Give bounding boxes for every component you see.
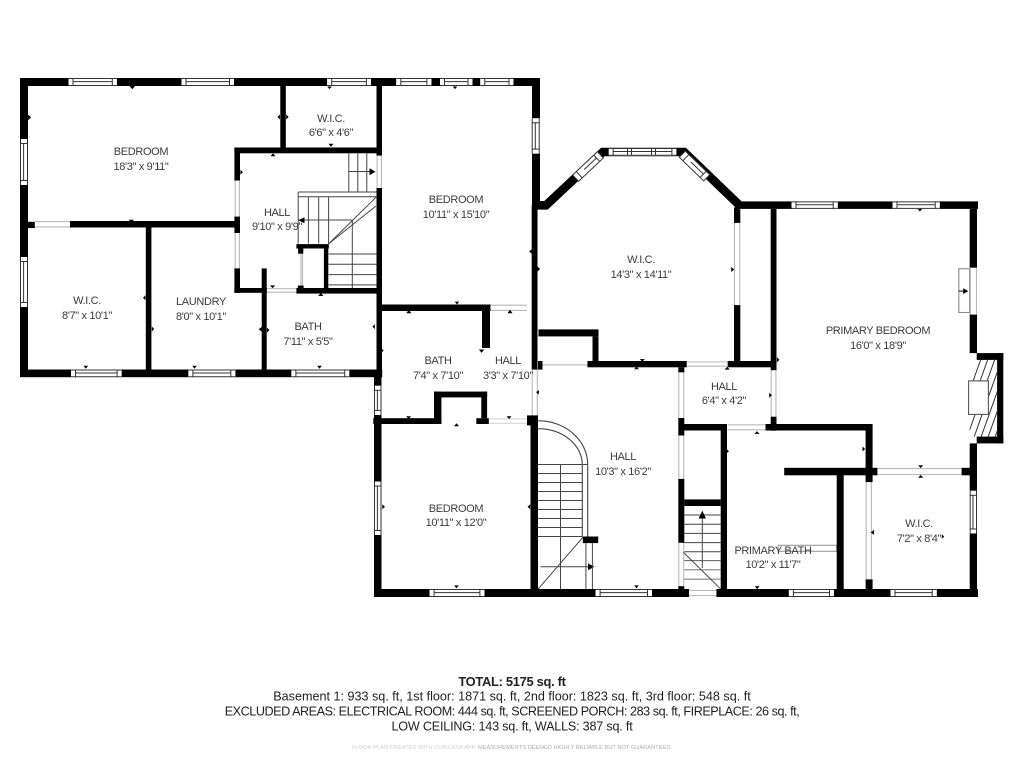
svg-text:BEDROOM: BEDROOM [114,146,169,158]
svg-text:18'3" x 9'11": 18'3" x 9'11" [114,161,169,173]
svg-text:14'3" x 14'11": 14'3" x 14'11" [611,269,672,281]
svg-text:10'11" x 15'10": 10'11" x 15'10" [423,209,490,221]
svg-text:W.I.C.: W.I.C. [905,518,933,530]
svg-text:BATH: BATH [294,321,322,333]
svg-text:6'6" x 4'6": 6'6" x 4'6" [309,127,354,139]
svg-text:10'11" x 12'0": 10'11" x 12'0" [426,517,487,529]
svg-text:9'10" x 9'9": 9'10" x 9'9" [252,221,302,233]
svg-text:16'0" x 18'9": 16'0" x 18'9" [850,340,906,352]
svg-text:Basement 1: 933 sq. ft, 1st fl: Basement 1: 933 sq. ft, 1st floor: 1871 … [273,690,751,704]
svg-text:FLOOR PLAN CREATED WITH CUBICA: FLOOR PLAN CREATED WITH CUBICASA APP. ME… [352,745,672,751]
svg-text:LOW CEILING: 143 sq. ft, WALLS: LOW CEILING: 143 sq. ft, WALLS: 387 sq. … [391,720,633,734]
svg-text:6'4" x 4'2": 6'4" x 4'2" [702,395,747,407]
svg-text:W.I.C.: W.I.C. [627,254,655,266]
svg-text:BEDROOM: BEDROOM [429,194,484,206]
svg-text:7'2" x 8'4": 7'2" x 8'4" [897,533,942,545]
svg-text:8'7" x 10'1": 8'7" x 10'1" [62,310,112,322]
svg-text:TOTAL: 5175 sq. ft: TOTAL: 5175 sq. ft [458,674,566,689]
svg-text:HALL: HALL [495,355,521,367]
svg-text:HALL: HALL [264,207,290,219]
svg-text:10'2" x 11'7": 10'2" x 11'7" [746,559,801,571]
svg-text:7'4" x 7'10": 7'4" x 7'10" [413,370,463,382]
svg-text:7'11" x 5'5": 7'11" x 5'5" [283,336,333,348]
svg-text:W.I.C.: W.I.C. [73,295,101,307]
svg-text:PRIMARY BATH: PRIMARY BATH [734,545,812,557]
svg-text:BEDROOM: BEDROOM [429,503,484,515]
svg-text:LAUNDRY: LAUNDRY [176,296,227,308]
svg-text:EXCLUDED AREAS: ELECTRICAL ROO: EXCLUDED AREAS: ELECTRICAL ROOM: 444 sq.… [225,705,800,719]
svg-text:PRIMARY BEDROOM: PRIMARY BEDROOM [826,325,931,337]
svg-text:HALL: HALL [711,381,737,393]
svg-text:10'3" x 16'2": 10'3" x 16'2" [595,466,651,478]
svg-text:3'3" x 7'10": 3'3" x 7'10" [483,370,533,382]
svg-text:BATH: BATH [424,355,452,367]
svg-text:W.I.C.: W.I.C. [317,113,345,125]
svg-text:HALL: HALL [610,451,636,463]
svg-text:8'0" x 10'1": 8'0" x 10'1" [176,311,226,323]
